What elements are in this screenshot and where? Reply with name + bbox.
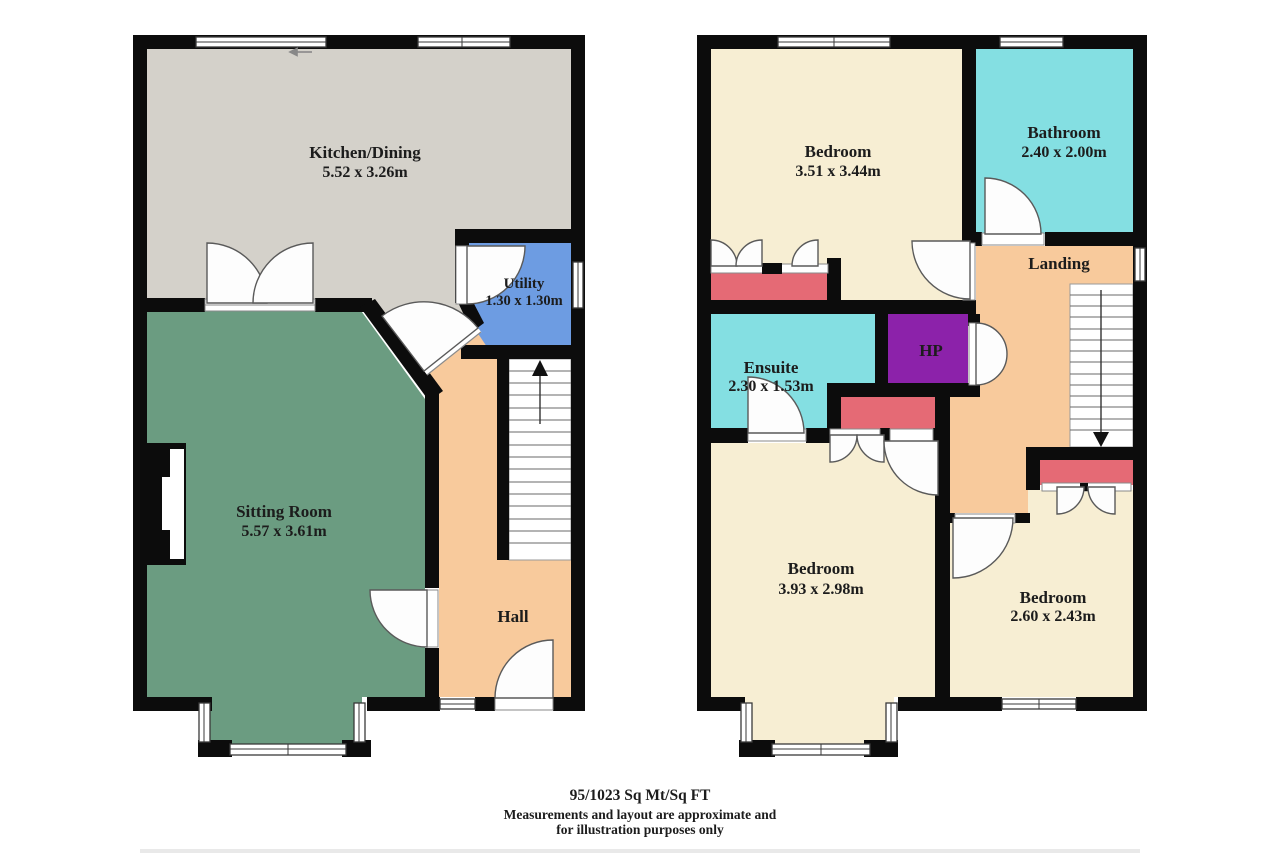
wall-segment [1133,35,1147,711]
room-label-sitting-room: Sitting Room [236,502,332,521]
room-dims-ensuite: 2.30 x 1.53m [728,378,814,395]
wall-segment [827,258,841,307]
wall-segment [571,35,585,711]
footer-disclaimer-line2: for illustration purposes only [556,822,724,837]
wall-segment [697,35,711,711]
door-threshold [426,590,438,647]
wall-segment [827,383,980,397]
wardrobe [1040,460,1133,485]
room-label-bedroom3: Bedroom [1020,588,1087,607]
room-dims-bedroom2: 3.93 x 2.98m [778,581,864,598]
door-threshold [890,429,933,441]
floorplan-canvas: Kitchen/Dining 5.52 x 3.26m Utility 1.30… [0,0,1280,853]
room-dims-bathroom: 2.40 x 2.00m [1021,144,1107,161]
wall-segment [1015,513,1030,523]
wall-segment [455,229,585,243]
wall-segment [697,697,745,711]
room-label-hall: Hall [497,607,528,626]
footer-area-text: 95/1023 Sq Mt/Sq FT [570,787,711,804]
wall-segment [1045,232,1147,246]
room-dims-utility: 1.30 x 1.30m [485,293,562,309]
room-dims-sitting-room: 5.57 x 3.61m [241,523,327,540]
room-label-landing: Landing [1028,254,1090,273]
wall-segment [962,35,976,243]
wall-segment [1026,447,1133,460]
wall-segment [806,428,830,443]
room-label-utility: Utility [504,276,545,292]
door-threshold [456,246,468,304]
wall-segment [425,390,439,588]
wardrobe [838,397,937,430]
door-threshold [495,698,553,710]
room-label-bathroom: Bathroom [1027,123,1100,142]
wall-segment [898,697,1002,711]
staircase-ground [509,359,571,560]
room-label-ensuite: Ensuite [744,358,799,377]
wardrobe-door-post [762,263,782,274]
wall-segment [697,428,748,443]
staircase-first [1070,284,1133,447]
room-label-hot-press: HP [919,341,943,360]
room-label-bedroom2: Bedroom [788,559,855,578]
wall-segment [1076,697,1147,711]
wall-segment [461,345,585,359]
room-dims-bedroom1: 3.51 x 3.44m [795,163,881,180]
wall-segment [497,359,509,560]
room-label-kitchen-dining: Kitchen/Dining [309,143,421,162]
wall-segment [553,697,585,711]
wall-segment [425,648,439,697]
room-dims-kitchen-dining: 5.52 x 3.26m [322,164,408,181]
wall-segment [367,697,440,711]
wall-segment [697,35,1147,49]
wall-segment [827,383,841,432]
door-threshold [982,233,1044,245]
room-label-bedroom1: Bedroom [805,142,872,161]
wall-segment [133,35,147,711]
wall-segment [875,314,888,386]
ground-floor-plan: Kitchen/Dining 5.52 x 3.26m Utility 1.30… [133,35,585,757]
bottom-crop-artifact [140,849,1140,853]
wall-segment [475,697,495,711]
plan-footer: 95/1023 Sq Mt/Sq FT Measurements and lay… [504,787,777,837]
floorplan-page: Kitchen/Dining 5.52 x 3.26m Utility 1.30… [0,0,1280,853]
footer-disclaimer-line1: Measurements and layout are approximate … [504,807,777,822]
room-dims-bedroom3: 2.60 x 2.43m [1010,608,1096,625]
first-floor-plan: Bedroom 3.51 x 3.44m Bathroom 2.40 x 2.0… [697,35,1147,757]
wall-segment [133,298,205,312]
